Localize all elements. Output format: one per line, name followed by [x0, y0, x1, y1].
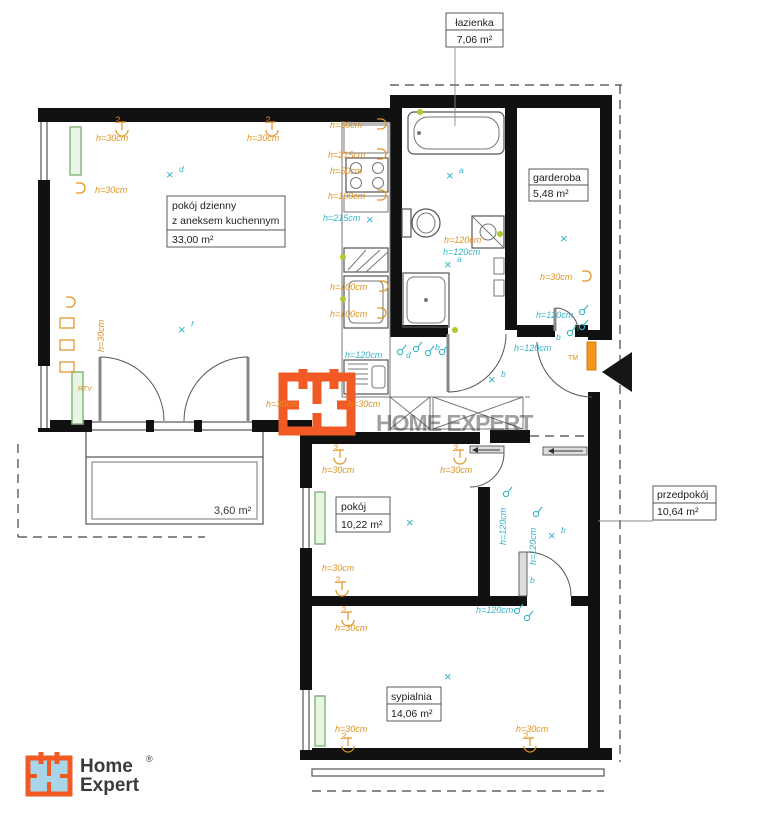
lamp-count: 2 [340, 605, 346, 615]
stored-door-leaf [543, 447, 587, 455]
entrance-arrow-icon [602, 352, 632, 392]
point-cross: × [166, 167, 174, 182]
point-letter: d [179, 164, 184, 174]
fridge [344, 248, 388, 272]
height-label: h=30cm [96, 319, 106, 352]
height-label: h=215cm [323, 213, 361, 223]
point-cross: × [444, 669, 452, 684]
height-label: h=215cm [328, 150, 366, 160]
height-label: h=50cm [330, 166, 363, 176]
tm-label: TM [568, 355, 578, 362]
room-area: 5,48 m² [533, 188, 569, 200]
balcony-double-door [100, 357, 248, 421]
logo-registered-mark: ® [146, 754, 153, 764]
room-name: pokój [341, 501, 366, 513]
point-letter: d [406, 350, 411, 360]
height-label: h=100cm [328, 191, 366, 201]
switch-icon [503, 487, 512, 497]
watermark: HOME EXPERT [283, 369, 533, 436]
room-label-przedpokoj: przedpokój 10,64 m² [598, 486, 716, 521]
height-label: h=30cm [322, 465, 355, 475]
room-label-lazienka: łazienka 7,06 m² [446, 13, 503, 126]
height-label: h=120cm [498, 507, 508, 545]
height-label: h=100cm [330, 282, 368, 292]
lamp-count: 2 [114, 115, 120, 125]
height-label: h=30cm [440, 465, 473, 475]
socket-icon [582, 271, 591, 281]
room-name: łazienka [455, 17, 494, 29]
height-label: h=30cm [335, 623, 368, 633]
height-label: h=50cm [330, 120, 363, 130]
point-letter: a [459, 165, 464, 175]
switch-icon [397, 345, 406, 355]
height-label: h=100cm [330, 309, 368, 319]
room-name: sypialnia [391, 691, 432, 703]
height-label: h=30cm [335, 724, 368, 734]
room-area: 10,22 m² [341, 519, 383, 531]
room-label-sypialnia: sypialnia 14,06 m² [387, 687, 441, 721]
lamp-count: 2 [332, 443, 338, 453]
point-cross: × [406, 515, 414, 530]
height-label: h=30cm [540, 272, 573, 282]
home-expert-logo-icon [28, 752, 70, 794]
wall-point-dots [340, 109, 503, 333]
room-area: 7,06 m² [457, 34, 493, 46]
pokoj-door [470, 446, 504, 487]
balcony-bottom [312, 769, 604, 791]
room-area: 14,06 m² [391, 708, 433, 720]
lamp-count: 2 [522, 731, 528, 741]
room-label-garderoba: garderoba 5,48 m² [529, 169, 588, 201]
socket-icon [66, 297, 75, 307]
watermark-text: HOME EXPERT [376, 410, 533, 436]
room-label-pokoj: pokój 10,22 m² [336, 497, 390, 532]
room-name: garderoba [533, 172, 581, 184]
height-label: h=30cm [266, 399, 299, 409]
room-name: pokój dzienny [172, 200, 237, 212]
point-letter: b [530, 575, 535, 585]
height-label: h=30cm [247, 133, 280, 143]
switch-icon [413, 342, 422, 352]
logo-text-expert: Expert [80, 775, 140, 796]
point-letter: b [556, 332, 561, 342]
height-label: h=30cm [322, 563, 355, 573]
radiator [315, 696, 325, 746]
height-label: h=120cm [528, 527, 538, 565]
point-letter: f [191, 319, 195, 329]
point-letter: a [457, 254, 462, 264]
balcony-left: 3,60 m² [86, 432, 263, 524]
lamp-count: 2 [264, 115, 270, 125]
radiator [315, 492, 325, 544]
room-label-pokoj-dzienny: pokój dzienny z aneksem kuchennym 33,00 … [167, 196, 285, 247]
room-area: 33,00 m² [172, 234, 214, 246]
height-label: h=30cm [348, 399, 381, 409]
home-expert-logo: Home Expert ® [28, 752, 153, 796]
bath-shelf-1 [494, 258, 504, 274]
room-name: przedpokój [657, 489, 708, 501]
socket-icon [76, 183, 85, 193]
switch-icon [425, 346, 434, 356]
sypialnia-door [519, 552, 571, 596]
lamp-count: 2 [334, 575, 340, 585]
balcony-area: 3,60 m² [214, 505, 252, 517]
bathroom-door [448, 334, 506, 392]
height-label: h=120cm [536, 310, 574, 320]
bathroom-fixtures [402, 112, 504, 327]
switch-icon [533, 507, 542, 517]
room-name: z aneksem kuchennym [172, 215, 280, 227]
window-sypialnia [300, 690, 312, 750]
switch-icon [567, 326, 576, 336]
floor-plan-page: 3,60 m² [0, 0, 768, 813]
point-letter: b [561, 525, 566, 535]
window-pokoj [300, 488, 312, 548]
height-label: h=30cm [96, 133, 129, 143]
balcony-door-strip [92, 420, 252, 432]
height-label: h=120cm [514, 343, 552, 353]
point-cross: × [488, 372, 496, 387]
point-cross: × [560, 231, 568, 246]
height-label: h=120cm [443, 247, 481, 257]
point-cross: × [548, 528, 556, 543]
point-letter: b [501, 369, 506, 379]
switch-icon [579, 305, 588, 315]
height-label: h=120cm [476, 605, 514, 615]
bath-shelf-2 [494, 280, 504, 296]
window-living-2 [38, 366, 50, 428]
point-cross: × [178, 322, 186, 337]
point-cross: × [444, 257, 452, 272]
point-cross: × [366, 212, 374, 227]
height-label: h=120cm [444, 235, 482, 245]
shower [403, 273, 449, 327]
radiator [70, 127, 81, 175]
lamp-count: 2 [452, 443, 458, 453]
bathtub [408, 112, 504, 154]
lamp-count: 2 [340, 731, 346, 741]
window-living-1 [38, 122, 50, 180]
height-label: h=120cm [345, 350, 383, 360]
switch-icon [524, 611, 533, 621]
room-area: 10,64 m² [657, 506, 699, 518]
height-label: h=30cm [95, 185, 128, 195]
logo-text-home: Home [80, 756, 133, 777]
height-label: h=30cm [516, 724, 549, 734]
rtv-label: RTV [78, 386, 92, 393]
radiator [72, 372, 83, 424]
socket-icon [377, 308, 386, 318]
toilet [402, 209, 440, 237]
floor-plan-drawing: 3,60 m² [0, 0, 768, 813]
point-cross: × [446, 168, 454, 183]
